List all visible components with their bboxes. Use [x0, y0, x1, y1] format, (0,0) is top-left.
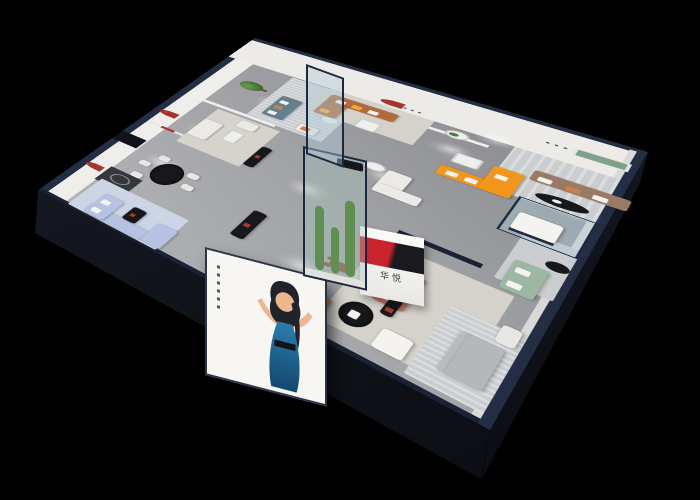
billboard-woman-figure	[249, 266, 321, 401]
cactus-plant	[331, 226, 339, 274]
dining-chair	[179, 183, 195, 192]
dining-chair	[185, 172, 200, 181]
coffee-table	[450, 152, 485, 170]
showroom-render: H 华悦	[0, 0, 700, 500]
glass-terrarium	[303, 146, 367, 291]
glass-partition-door	[306, 64, 344, 168]
cactus-plant	[315, 205, 324, 271]
cactus-plant	[345, 200, 355, 278]
billboard-vertical-text	[217, 264, 220, 309]
brand-logo-panel: H 华悦	[360, 226, 424, 306]
tree-trunk	[258, 88, 267, 92]
